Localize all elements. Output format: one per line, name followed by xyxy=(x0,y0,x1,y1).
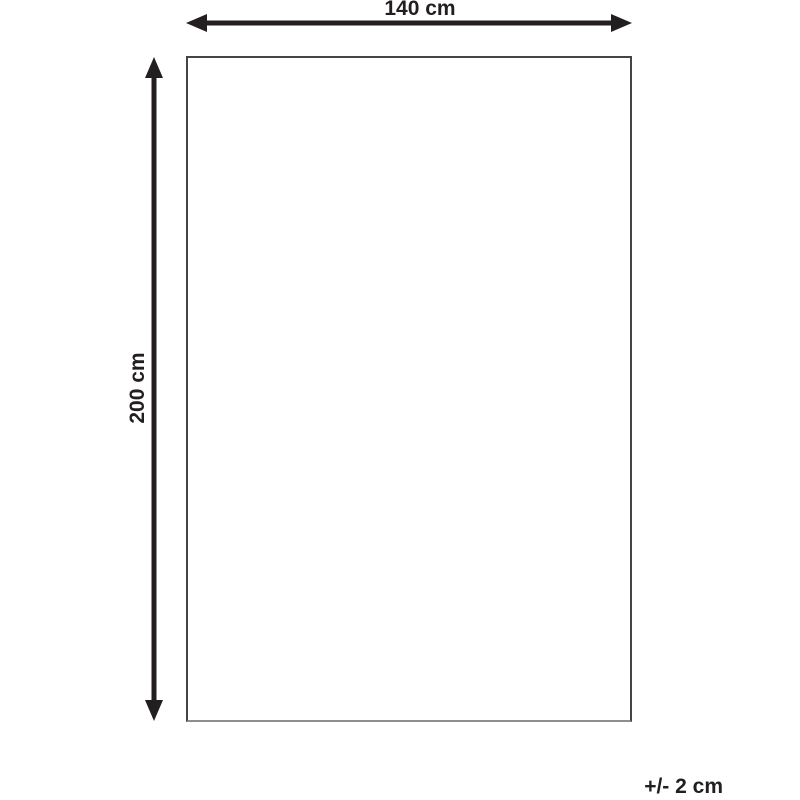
dimension-diagram: 140 cm 200 cm +/- 2 cm xyxy=(0,0,800,800)
width-dimension-label: 140 cm xyxy=(320,0,520,20)
tolerance-label: +/- 2 cm xyxy=(644,776,723,798)
height-dimension-label: 200 cm xyxy=(127,352,149,423)
product-outline-rectangle xyxy=(186,56,632,722)
